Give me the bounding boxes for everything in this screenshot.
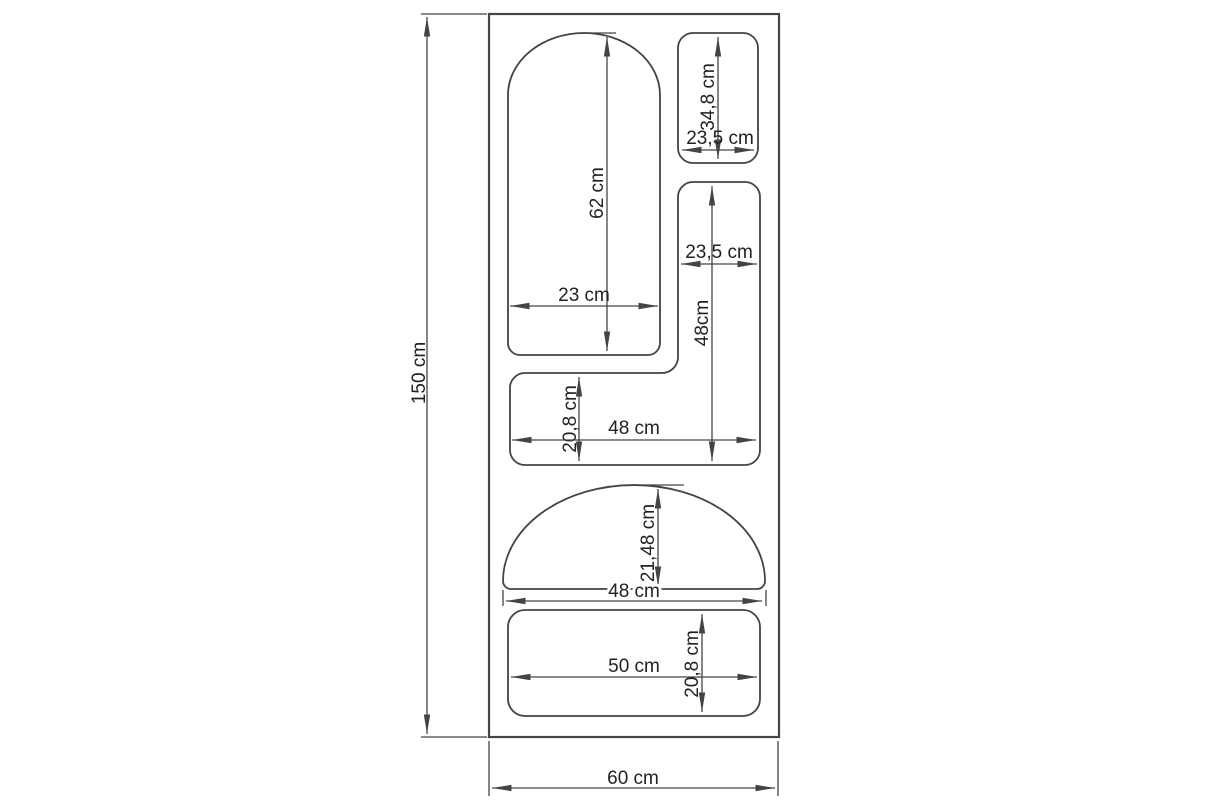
dim-label-bottom-rect-width: 50 cm xyxy=(608,656,660,677)
dim-label-l-shape-top-width: 23,5 cm xyxy=(685,242,753,263)
panel-group xyxy=(489,14,779,737)
dim-label-arch-height: 62 cm xyxy=(587,167,608,219)
drawing-canvas: 150 cm 60 cm 62 cm 23 cm 34,8 cm 23,5 cm… xyxy=(0,0,1214,809)
dim-label-panel-height: 150 cm xyxy=(409,342,430,404)
dim-label-top-right-rect-width: 23,5 cm xyxy=(686,128,754,149)
panel-height-extension-lines xyxy=(421,14,487,737)
arch-cutout-shape xyxy=(508,33,660,355)
dim-label-l-shape-bar-height: 20,8 cm xyxy=(560,385,581,453)
dim-label-bottom-rect-height: 20,8 cm xyxy=(682,630,703,698)
half-round-cutout-shape xyxy=(503,485,765,589)
dim-label-l-shape-height: 48cm xyxy=(692,300,713,346)
dim-label-arch-width: 23 cm xyxy=(558,285,610,306)
dim-label-half-round-width: 48 cm xyxy=(608,581,660,602)
dim-label-l-shape-bar-width: 48 cm xyxy=(608,418,660,439)
dimension-annotations: 150 cm 60 cm 62 cm 23 cm 34,8 cm 23,5 cm… xyxy=(409,14,778,796)
technical-drawing: 150 cm 60 cm 62 cm 23 cm 34,8 cm 23,5 cm… xyxy=(0,0,1214,809)
dim-label-panel-width: 60 cm xyxy=(607,768,659,789)
dim-label-top-right-rect-height: 34,8 cm xyxy=(698,63,719,131)
dim-label-half-round-height: 21,48 cm xyxy=(638,504,659,582)
panel-outline xyxy=(489,14,779,737)
